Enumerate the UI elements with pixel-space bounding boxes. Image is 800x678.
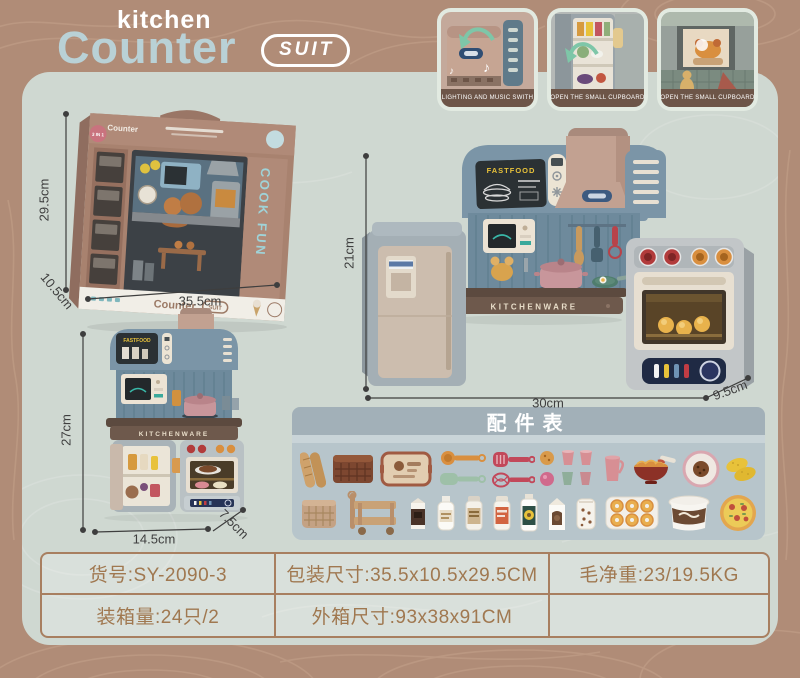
jam-jar-icon [492, 495, 512, 531]
noodle-bowl-icon [632, 449, 678, 489]
ladle-and-spatula-icon [438, 449, 486, 489]
vent-panel [625, 150, 666, 218]
serving-tray-icon [379, 450, 433, 488]
donut-tray-icon [605, 494, 659, 532]
baguettes-icon [300, 448, 326, 490]
accessories-divider [292, 435, 765, 443]
svg-text:3 IN 1: 3 IN 1 [92, 132, 105, 138]
callout-caption: OPEN THE SMALL CUPBOARD [661, 89, 754, 107]
svg-text:FASTFOOD: FASTFOOD [487, 166, 536, 175]
cookie-and-ball-icon [539, 449, 555, 489]
box-top-logo: Counter [107, 123, 138, 134]
spec-empty-cell [550, 595, 768, 636]
product-sheet: kitchen Counter SUIT ♪ ♪ LIGHTING AND MU… [0, 0, 800, 678]
corn-cobs-icon [725, 455, 757, 483]
spec-item-number: 货号:SY-2090-3 [42, 554, 276, 595]
callout-caption: OPEN THE SMALL CUPBOARD [551, 89, 644, 107]
slotted-spatula-and-whisk-icon [491, 449, 535, 489]
music-note-icon: ♪ [483, 59, 490, 75]
svg-text:FASTFOOD: FASTFOOD [123, 338, 151, 344]
accessories-row-2 [300, 491, 757, 535]
large-kitchen-figure: FASTFOOD [362, 120, 754, 398]
logo-suit-badge: SUIT [261, 34, 350, 67]
brand-logo: kitchen Counter SUIT [55, 2, 375, 72]
callout-fridge-cupboard: OPEN THE SMALL CUPBOARD [547, 8, 648, 111]
small-kitchen-height-label: 27cm [59, 414, 74, 446]
milk-carton-icon [547, 495, 567, 531]
small-fridge-module [110, 440, 176, 512]
oven-module [626, 238, 754, 390]
woven-basket-icon [300, 496, 338, 530]
fridge-module [362, 222, 466, 386]
bread-crate-icon [331, 451, 375, 487]
measuring-cup-icon [603, 453, 627, 485]
large-kitchen-width-label: 30cm [532, 396, 564, 411]
large-kitchen-height-label: 21cm [342, 237, 357, 269]
spec-carton-size: 外箱尺寸:93x38x91CM [276, 595, 550, 636]
small-kitchen-width-label: 14.5cm [133, 532, 176, 547]
small-menu-board: FASTFOOD [116, 333, 158, 364]
accessories-title: 配件表 [292, 407, 765, 435]
callout-caption: LIGHTING AND MUSIC SWITH [441, 89, 534, 107]
ice-cream-tub-icon [667, 494, 711, 532]
small-oven-module [180, 440, 244, 512]
pizza-icon [719, 494, 757, 532]
spec-carton-quantity: 装箱量:24只/2 [42, 595, 276, 636]
spec-gross-net-weight: 毛净重:23/19.5KG [550, 554, 768, 595]
cream-jar-icon [464, 495, 484, 531]
box-height-label: 29.5cm [37, 179, 52, 222]
counter: KITCHENWARE [441, 288, 627, 314]
play-cups-icon [560, 449, 598, 489]
logo-counter-text: Counter [57, 22, 237, 74]
accessories-row-1 [300, 448, 757, 490]
spec-package-size: 包装尺寸:35.5x10.5x29.5CM [276, 554, 550, 595]
callout-music-switch: ♪ ♪ LIGHTING AND MUSIC SWITH [437, 8, 538, 111]
fastfood-menu-board: FASTFOOD [475, 159, 547, 209]
callout-small-cupboard: OPEN THE SMALL CUPBOARD [657, 8, 758, 111]
small-microwave [121, 374, 167, 404]
milk-bottle-icon [436, 495, 456, 531]
serving-trolley-icon [346, 491, 400, 535]
accessories-panel [292, 443, 765, 540]
coffee-carton-icon [408, 495, 428, 531]
snack-packet-icon [575, 495, 597, 531]
microwave [483, 219, 535, 253]
oil-bottle-icon [519, 494, 539, 532]
music-note-icon: ♪ [449, 66, 454, 77]
spec-table: 货号:SY-2090-3 包装尺寸:35.5x10.5x29.5CM 毛净重:2… [40, 552, 770, 638]
dessert-plate-icon [682, 450, 720, 488]
svg-text:KITCHENWARE: KITCHENWARE [139, 431, 209, 438]
small-kitchen-figure: FASTFOOD [88, 306, 260, 524]
svg-text:KITCHENWARE: KITCHENWARE [490, 303, 577, 312]
small-counter: KITCHENWARE [106, 418, 242, 440]
box-width-label: 35.5cm [179, 294, 222, 309]
